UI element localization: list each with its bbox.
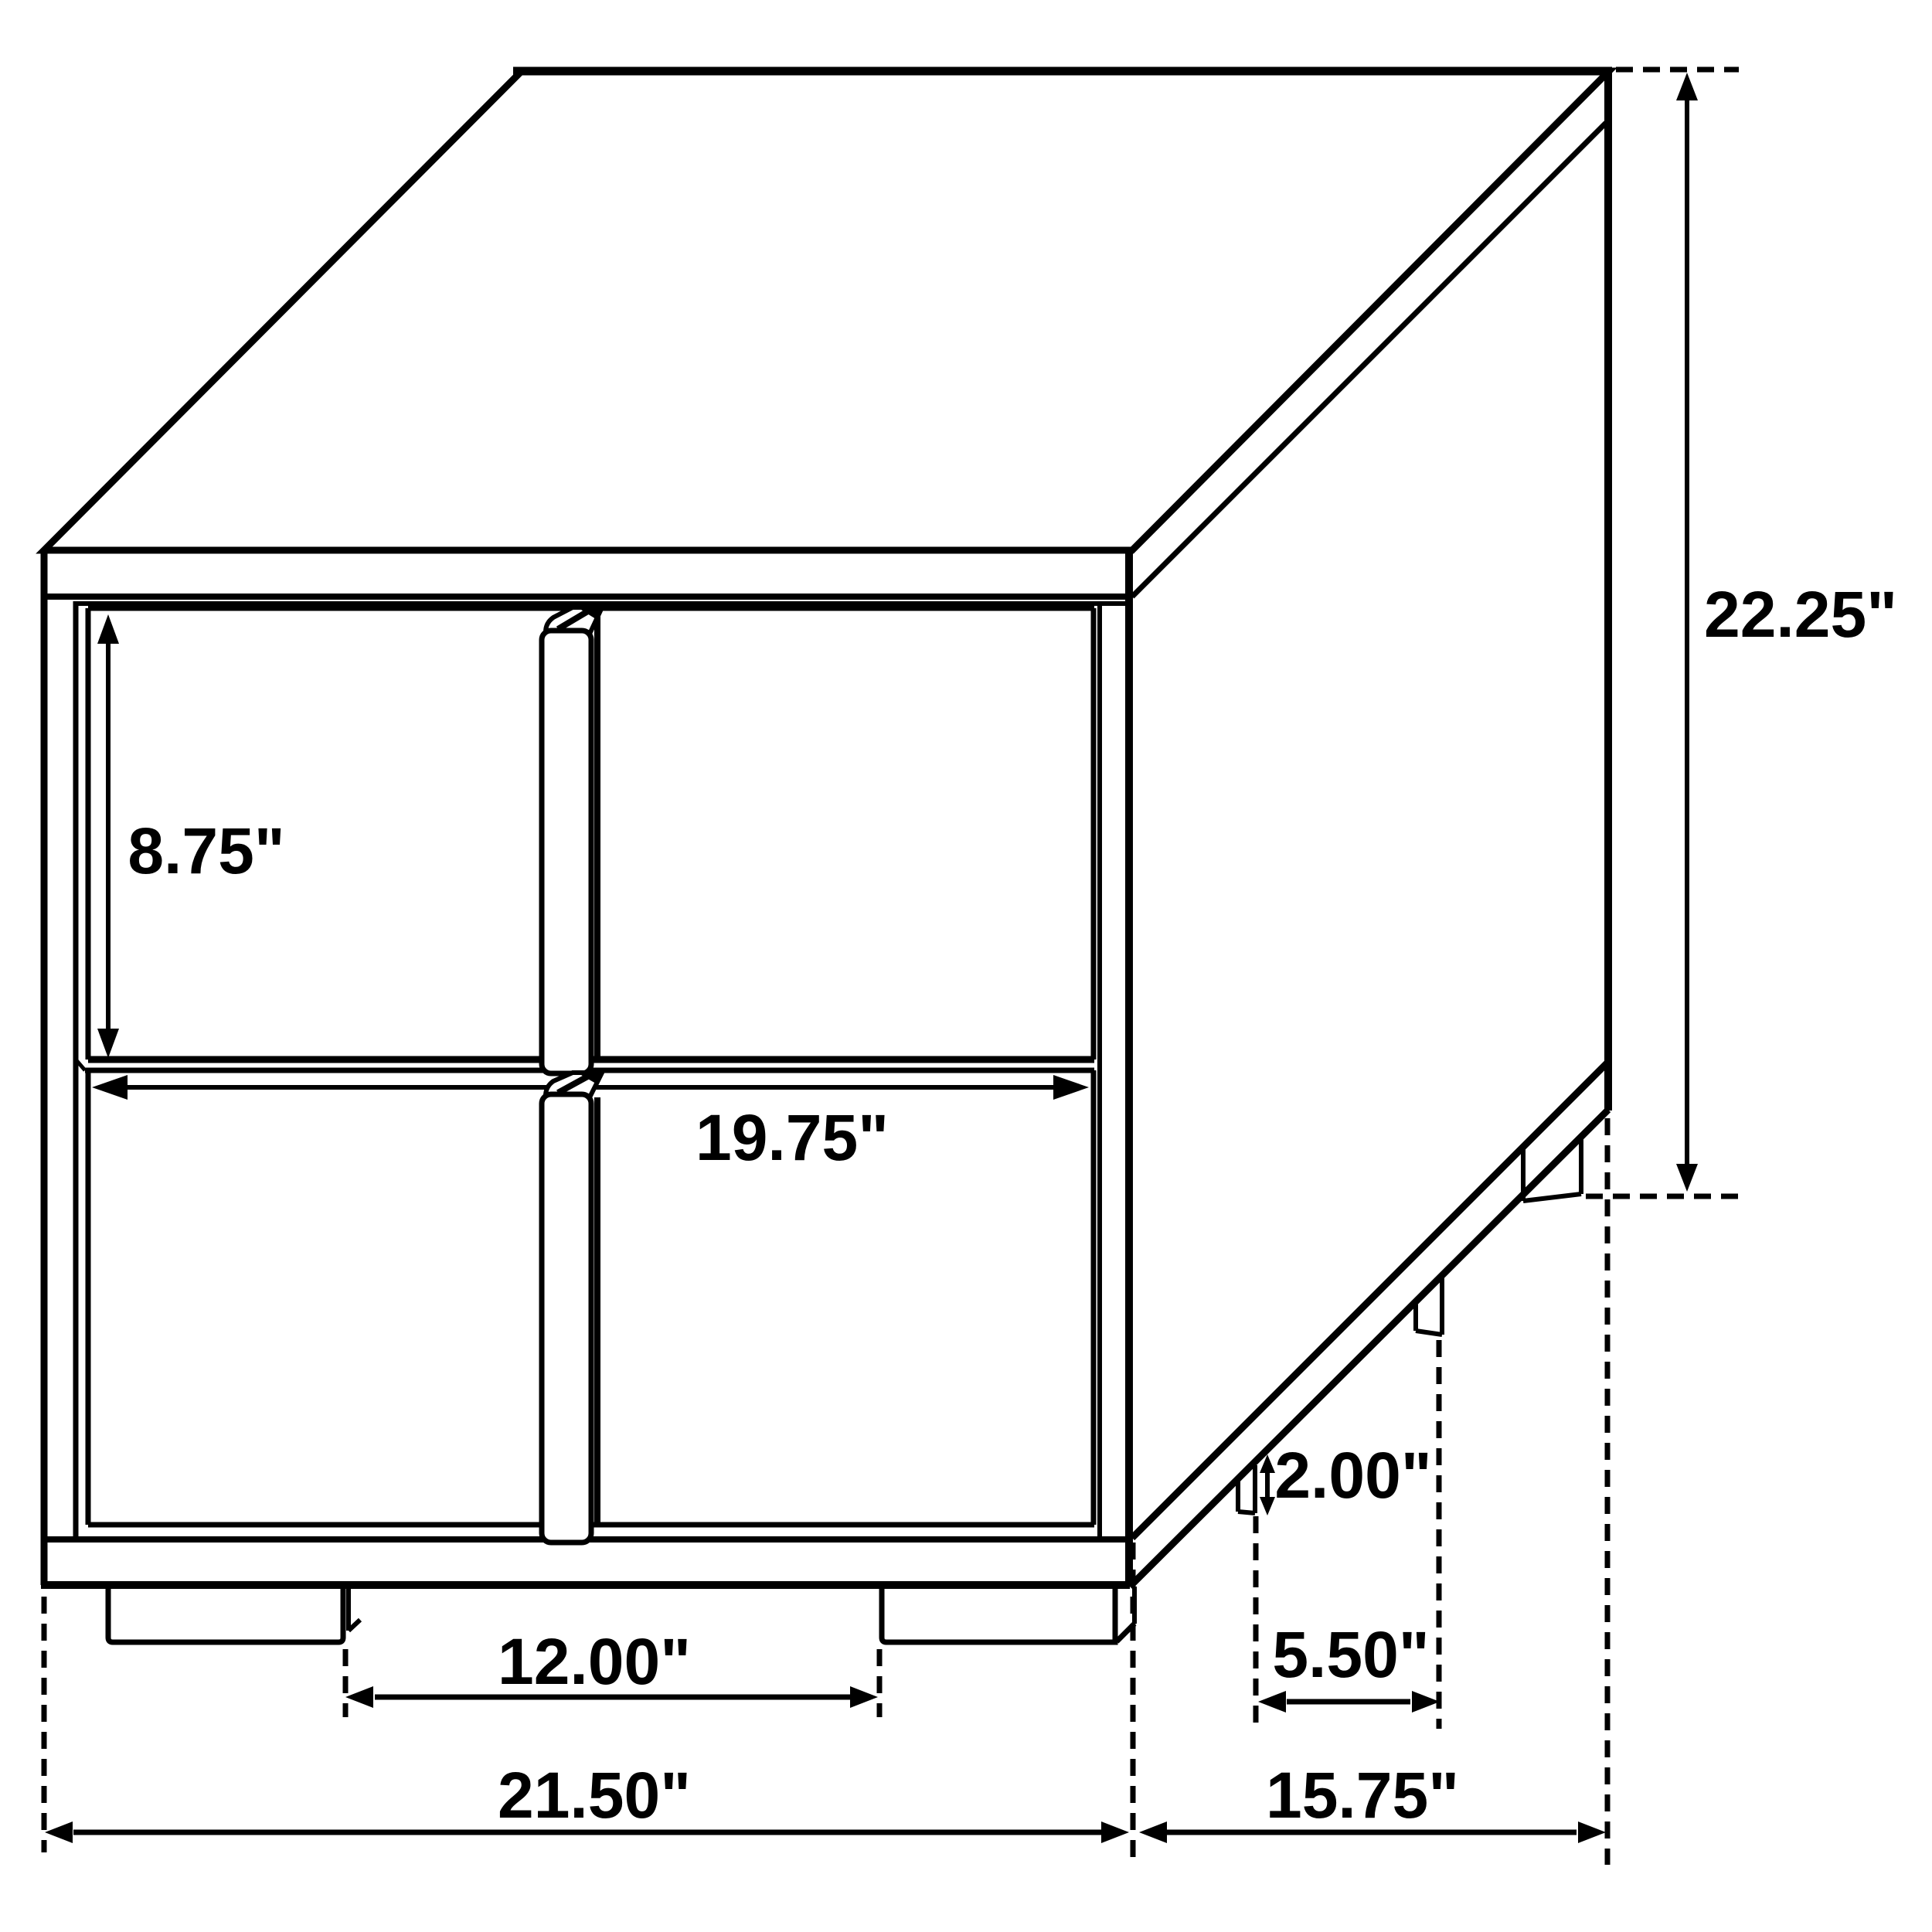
svg-text:5.50": 5.50" (1272, 1618, 1429, 1691)
svg-text:22.25": 22.25" (1704, 578, 1897, 651)
svg-text:2.00": 2.00" (1274, 1439, 1431, 1512)
svg-text:21.50": 21.50" (498, 1759, 691, 1832)
svg-text:15.75": 15.75" (1266, 1759, 1459, 1832)
svg-text:19.75": 19.75" (696, 1101, 889, 1174)
svg-text:12.00": 12.00" (498, 1625, 691, 1698)
svg-text:8.75": 8.75" (128, 815, 284, 887)
